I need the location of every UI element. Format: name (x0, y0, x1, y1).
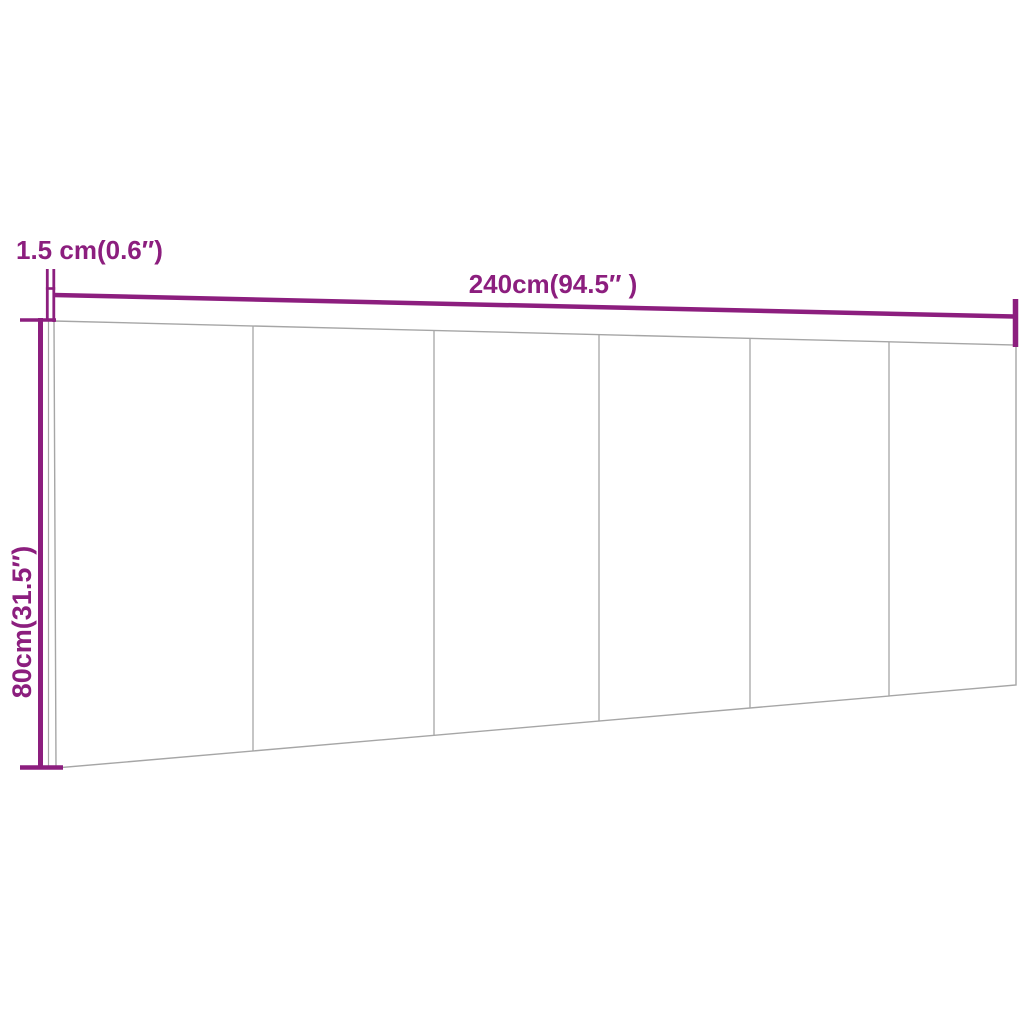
dimension-lines (20, 269, 1016, 768)
width-label: 240cm(94.5″ ) (469, 269, 638, 299)
panel (49, 321, 1017, 768)
panel-front-face (54, 321, 1016, 768)
dimension-diagram: 1.5 cm(0.6″) 240cm(94.5″ ) 80cm(31.5″) (0, 0, 1024, 1024)
diagram-canvas: 1.5 cm(0.6″) 240cm(94.5″ ) 80cm(31.5″) (0, 0, 1024, 1024)
thickness-label: 1.5 cm(0.6″) (16, 235, 163, 265)
height-label: 80cm(31.5″) (7, 546, 37, 699)
